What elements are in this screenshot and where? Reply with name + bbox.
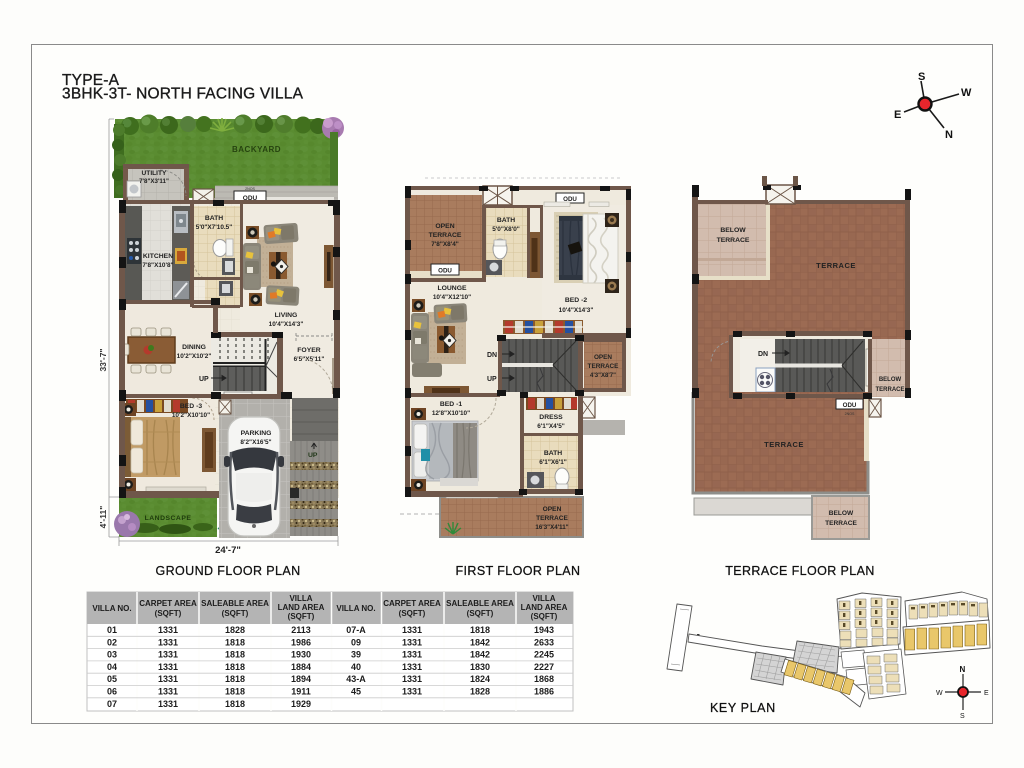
svg-text:1818: 1818 bbox=[225, 687, 245, 697]
svg-text:DRESS: DRESS bbox=[539, 414, 563, 421]
svg-text:1886: 1886 bbox=[534, 687, 554, 697]
svg-text:1818: 1818 bbox=[225, 699, 245, 709]
svg-text:02: 02 bbox=[107, 637, 117, 647]
svg-text:1868: 1868 bbox=[534, 674, 554, 684]
svg-text:TERRACE: TERRACE bbox=[825, 520, 857, 527]
svg-text:1331: 1331 bbox=[158, 687, 178, 697]
svg-text:(SQFT): (SQFT) bbox=[531, 612, 558, 621]
svg-text:VILLA: VILLA bbox=[289, 594, 312, 603]
svg-text:1828: 1828 bbox=[470, 687, 490, 697]
svg-text:UTILITY: UTILITY bbox=[142, 170, 168, 177]
svg-text:1884: 1884 bbox=[291, 662, 311, 672]
svg-text:(SQFT): (SQFT) bbox=[467, 609, 494, 618]
svg-text:UP: UP bbox=[199, 376, 209, 383]
svg-text:7'8"X8'4": 7'8"X8'4" bbox=[431, 241, 459, 248]
svg-text:BED -3: BED -3 bbox=[180, 403, 203, 410]
svg-text:E: E bbox=[894, 109, 901, 121]
svg-text:OPEN: OPEN bbox=[543, 506, 562, 513]
svg-text:2633: 2633 bbox=[534, 637, 554, 647]
svg-text:CARPET AREA: CARPET AREA bbox=[139, 599, 197, 608]
svg-text:1894: 1894 bbox=[291, 674, 311, 684]
svg-text:TERRACE: TERRACE bbox=[429, 232, 462, 239]
svg-text:BATH: BATH bbox=[544, 450, 562, 457]
svg-text:VILLA NO.: VILLA NO. bbox=[92, 604, 131, 613]
svg-text:GROUND FLOOR PLAN: GROUND FLOOR PLAN bbox=[155, 564, 300, 578]
svg-text:1943: 1943 bbox=[534, 625, 554, 635]
svg-text:(SQFT): (SQFT) bbox=[222, 609, 249, 618]
svg-text:1331: 1331 bbox=[158, 699, 178, 709]
svg-text:1818: 1818 bbox=[225, 650, 245, 660]
svg-text:04: 04 bbox=[107, 662, 117, 672]
svg-text:W: W bbox=[936, 690, 943, 697]
svg-text:BACKYARD: BACKYARD bbox=[232, 145, 281, 154]
svg-text:45: 45 bbox=[351, 687, 361, 697]
svg-text:UP: UP bbox=[487, 376, 497, 383]
svg-text:4'3"X8'7": 4'3"X8'7" bbox=[590, 373, 616, 379]
svg-text:TERRACE FLOOR PLAN: TERRACE FLOOR PLAN bbox=[725, 564, 875, 578]
svg-text:BELOW: BELOW bbox=[720, 227, 746, 234]
svg-text:TERRACE: TERRACE bbox=[588, 363, 620, 370]
svg-text:2113: 2113 bbox=[291, 625, 311, 635]
svg-text:1818: 1818 bbox=[225, 662, 245, 672]
svg-text:06: 06 bbox=[107, 687, 117, 697]
svg-text:1331: 1331 bbox=[402, 662, 422, 672]
svg-text:2227: 2227 bbox=[534, 662, 554, 672]
svg-text:1331: 1331 bbox=[158, 662, 178, 672]
svg-text:10'4"X12'10": 10'4"X12'10" bbox=[433, 294, 471, 301]
svg-text:TERRACE: TERRACE bbox=[717, 237, 750, 244]
svg-text:VILLA NO.: VILLA NO. bbox=[336, 604, 375, 613]
svg-text:12'8"X10'10": 12'8"X10'10" bbox=[432, 410, 470, 417]
svg-text:01: 01 bbox=[107, 625, 117, 635]
svg-text:1842: 1842 bbox=[470, 650, 490, 660]
svg-text:BED -2: BED -2 bbox=[565, 297, 588, 304]
svg-text:1331: 1331 bbox=[402, 637, 422, 647]
svg-text:SALEABLE AREA: SALEABLE AREA bbox=[446, 599, 514, 608]
svg-text:ODU: ODU bbox=[438, 268, 452, 275]
svg-text:CARPET AREA: CARPET AREA bbox=[383, 599, 441, 608]
svg-text:W: W bbox=[961, 87, 972, 99]
svg-text:N: N bbox=[960, 665, 966, 674]
svg-text:OPEN: OPEN bbox=[435, 223, 454, 230]
svg-text:1331: 1331 bbox=[402, 674, 422, 684]
svg-text:TERRACE: TERRACE bbox=[536, 515, 568, 522]
svg-text:1331: 1331 bbox=[158, 625, 178, 635]
svg-text:UP: UP bbox=[308, 452, 318, 459]
svg-text:1930: 1930 bbox=[291, 650, 311, 660]
svg-text:1818: 1818 bbox=[470, 625, 490, 635]
svg-text:N: N bbox=[945, 129, 953, 141]
svg-text:DN: DN bbox=[758, 351, 768, 358]
svg-text:1929: 1929 bbox=[291, 699, 311, 709]
svg-text:S: S bbox=[918, 71, 925, 83]
svg-text:43-A: 43-A bbox=[346, 674, 366, 684]
svg-text:16'3"X4'11": 16'3"X4'11" bbox=[535, 524, 568, 531]
svg-text:1911: 1911 bbox=[291, 687, 311, 697]
svg-text:05: 05 bbox=[107, 674, 117, 684]
svg-text:4'-11": 4'-11" bbox=[98, 506, 108, 529]
svg-text:10'2"X10'2": 10'2"X10'2" bbox=[177, 353, 212, 360]
svg-text:33'-7": 33'-7" bbox=[98, 348, 108, 371]
svg-text:5'0"X7'10.5": 5'0"X7'10.5" bbox=[196, 224, 232, 231]
svg-text:6'5"X5'11": 6'5"X5'11" bbox=[294, 356, 325, 363]
svg-text:10'4"X14'3": 10'4"X14'3" bbox=[269, 321, 304, 328]
svg-text:KITCHEN: KITCHEN bbox=[143, 253, 173, 260]
svg-text:24'-7": 24'-7" bbox=[215, 545, 241, 556]
svg-text:(SQFT): (SQFT) bbox=[399, 609, 426, 618]
svg-text:DINING: DINING bbox=[182, 344, 206, 351]
svg-text:1818: 1818 bbox=[225, 674, 245, 684]
svg-text:8'2"X16'5": 8'2"X16'5" bbox=[240, 439, 271, 446]
svg-text:VILLA: VILLA bbox=[532, 594, 555, 603]
svg-text:1828: 1828 bbox=[225, 625, 245, 635]
svg-text:1824: 1824 bbox=[470, 674, 490, 684]
svg-text:BELOW: BELOW bbox=[879, 377, 902, 383]
svg-text:TERRACE: TERRACE bbox=[816, 261, 856, 270]
svg-text:1830: 1830 bbox=[470, 662, 490, 672]
svg-text:BED -1: BED -1 bbox=[440, 401, 463, 408]
svg-text:LAND AREA: LAND AREA bbox=[278, 603, 325, 612]
svg-text:03: 03 bbox=[107, 650, 117, 660]
svg-text:SALEABLE AREA: SALEABLE AREA bbox=[201, 599, 269, 608]
svg-text:7'8"X3'11": 7'8"X3'11" bbox=[139, 178, 169, 185]
svg-text:1331: 1331 bbox=[158, 674, 178, 684]
svg-text:09: 09 bbox=[351, 637, 361, 647]
svg-text:1331: 1331 bbox=[158, 637, 178, 647]
svg-text:5'0"X8'0": 5'0"X8'0" bbox=[492, 226, 520, 233]
svg-text:TERRACE: TERRACE bbox=[764, 440, 804, 449]
svg-text:1842: 1842 bbox=[470, 637, 490, 647]
svg-text:FIRST FLOOR PLAN: FIRST FLOOR PLAN bbox=[456, 564, 581, 578]
svg-text:OPEN: OPEN bbox=[594, 354, 612, 361]
svg-text:39: 39 bbox=[351, 650, 361, 660]
svg-text:PARKING: PARKING bbox=[241, 430, 272, 437]
svg-text:1331: 1331 bbox=[402, 625, 422, 635]
svg-text:2NOS: 2NOS bbox=[845, 412, 855, 416]
svg-text:(SQFT): (SQFT) bbox=[288, 612, 315, 621]
svg-text:07-A: 07-A bbox=[346, 625, 366, 635]
svg-text:10'4"X14'3": 10'4"X14'3" bbox=[559, 307, 594, 314]
svg-text:BELOW: BELOW bbox=[829, 510, 854, 517]
svg-text:DN: DN bbox=[487, 352, 497, 359]
svg-text:6'1"X4'5": 6'1"X4'5" bbox=[537, 423, 565, 430]
svg-text:2NOS: 2NOS bbox=[245, 187, 255, 191]
svg-text:6'1"X6'1": 6'1"X6'1" bbox=[539, 459, 567, 466]
svg-text:TERRACE: TERRACE bbox=[875, 387, 904, 393]
svg-text:KEY PLAN: KEY PLAN bbox=[710, 701, 776, 715]
svg-text:LIVING: LIVING bbox=[275, 312, 298, 319]
svg-text:1818: 1818 bbox=[225, 637, 245, 647]
svg-text:40: 40 bbox=[351, 662, 361, 672]
svg-text:1331: 1331 bbox=[402, 687, 422, 697]
svg-text:1986: 1986 bbox=[291, 637, 311, 647]
svg-text:E: E bbox=[984, 690, 989, 697]
svg-text:07: 07 bbox=[107, 699, 117, 709]
svg-text:BATH: BATH bbox=[205, 215, 223, 222]
svg-text:2245: 2245 bbox=[534, 650, 554, 660]
svg-text:3BHK-3T- NORTH FACING VILLA: 3BHK-3T- NORTH FACING VILLA bbox=[62, 86, 304, 103]
svg-text:S: S bbox=[960, 713, 965, 720]
svg-text:FOYER: FOYER bbox=[297, 347, 321, 354]
svg-text:LANDSCAPE: LANDSCAPE bbox=[145, 515, 192, 522]
svg-text:1331: 1331 bbox=[158, 650, 178, 660]
svg-text:1331: 1331 bbox=[402, 650, 422, 660]
svg-text:BATH: BATH bbox=[497, 217, 515, 224]
svg-text:LOUNGE: LOUNGE bbox=[437, 285, 467, 292]
svg-text:7'8"X10'8": 7'8"X10'8" bbox=[142, 262, 173, 269]
svg-text:(SQFT): (SQFT) bbox=[155, 609, 182, 618]
svg-text:LAND AREA: LAND AREA bbox=[521, 603, 568, 612]
svg-text:ODU: ODU bbox=[843, 402, 857, 409]
